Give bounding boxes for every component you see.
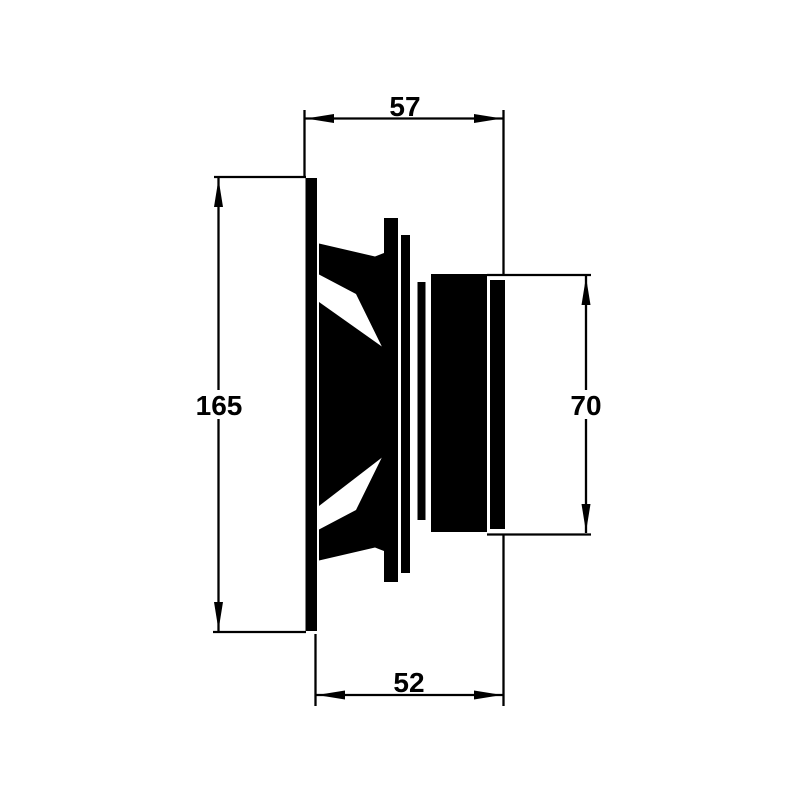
speaker-dimension-diagram: 57 165 70 52 — [0, 0, 800, 800]
drawing-canvas: 57 165 70 52 — [0, 0, 800, 800]
speaker-rear-plate — [490, 280, 505, 529]
arrowhead-right — [474, 691, 502, 700]
dimension-label-right: 70 — [570, 390, 601, 421]
speaker-silhouette — [306, 178, 506, 631]
dimension-left: 165 — [196, 177, 306, 632]
speaker-mounting-ring — [401, 235, 410, 573]
arrowhead-down — [582, 504, 591, 532]
arrowhead-left — [306, 114, 334, 123]
dimension-label-top: 57 — [389, 91, 420, 122]
speaker-basket-rim — [384, 218, 398, 582]
dimension-label-bottom: 52 — [393, 667, 424, 698]
dimension-label-left: 165 — [196, 390, 243, 421]
arrowhead-right — [474, 114, 502, 123]
arrowhead-up — [582, 277, 591, 305]
arrowhead-down — [214, 602, 223, 630]
speaker-front-flange — [306, 178, 318, 631]
arrowhead-left — [317, 691, 345, 700]
speaker-magnet — [431, 274, 487, 532]
arrowhead-up — [214, 179, 223, 207]
speaker-spacer-ring — [418, 282, 426, 520]
